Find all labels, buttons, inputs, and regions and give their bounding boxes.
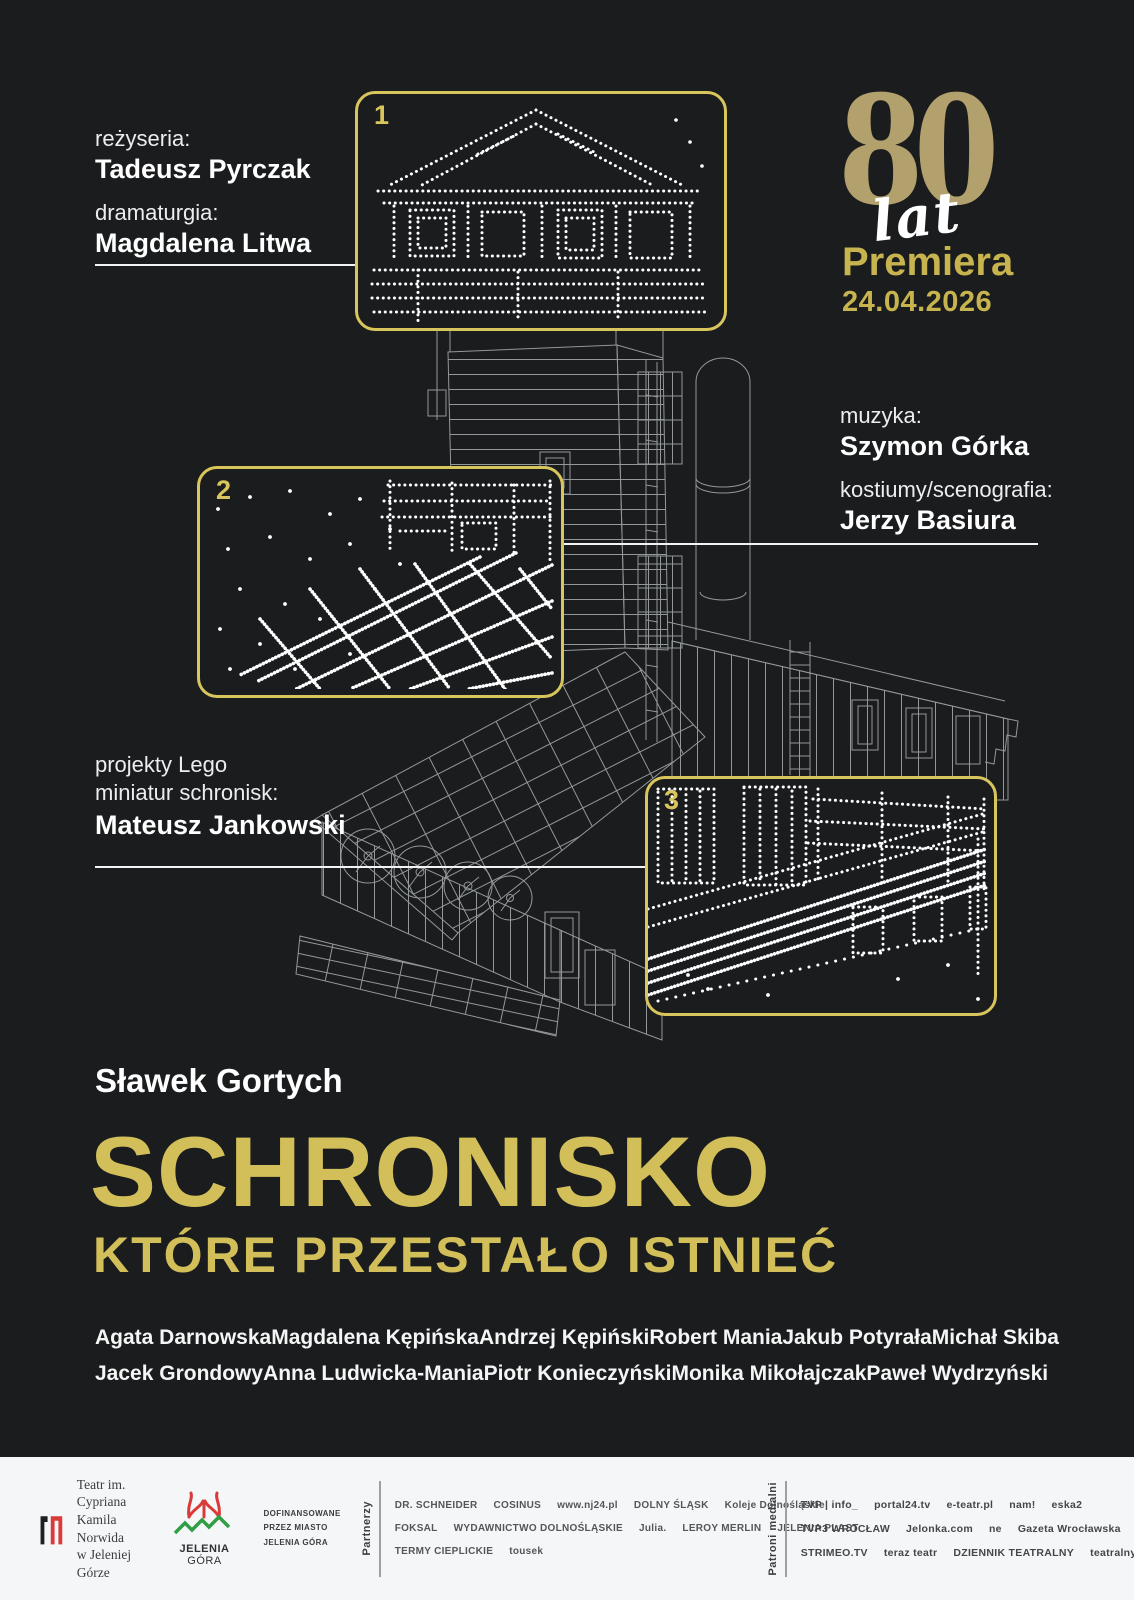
- callout-number-3: 3: [664, 785, 679, 816]
- callout-box-2: 2: [197, 466, 564, 698]
- premiere-date: 24.04.2026: [842, 286, 992, 319]
- partner-logo: LEROY MERLIN: [682, 1523, 761, 1534]
- funding-note: DOFINANSOWANE PRZEZ MIASTO JELENIA GÓRA: [263, 1507, 340, 1550]
- lego-label-line2: miniatur schronisk:: [95, 780, 346, 806]
- theater-poster: 1 2: [0, 0, 1134, 1600]
- media-logo: DZIENNIK TEATRALNY: [953, 1547, 1074, 1559]
- media-logo: TVP3 WROCŁAW: [801, 1523, 890, 1535]
- media-logo: Jelonka.com: [906, 1523, 973, 1535]
- theater-name: Teatr im. Cypriana Kamila Norwida w Jele…: [77, 1476, 142, 1581]
- credits-lego: projekty Lego miniatur schronisk: Mateus…: [95, 752, 346, 856]
- theater-identity: Teatr im. Cypriana Kamila Norwida w Jele…: [38, 1476, 141, 1581]
- jelenia-gora-logo: JELENIA GÓRA: [167, 1491, 241, 1567]
- rezyseria-label: reżyseria:: [95, 126, 311, 152]
- rezyseria-name: Tadeusz Pyrczak: [95, 154, 311, 186]
- cast-row-1: Agata DarnowskaMagdalena KępińskaAndrzej…: [95, 1326, 1017, 1350]
- media-logo: eska2: [1052, 1499, 1083, 1511]
- theater-name-line1: Teatr im. Cypriana: [77, 1476, 142, 1511]
- funding-line3: JELENIA GÓRA: [263, 1536, 340, 1550]
- partner-logo: FOKSAL: [395, 1523, 438, 1534]
- credits-direction: reżyseria: Tadeusz Pyrczak dramaturgia: …: [95, 126, 311, 274]
- callout-number-1: 1: [374, 100, 389, 131]
- theater-name-line3: w Jeleniej Górze: [77, 1546, 142, 1581]
- partners-section-label: Partnerzy: [361, 1474, 381, 1584]
- author-name: Sławek Gortych: [95, 1062, 343, 1100]
- callout-number-2: 2: [216, 475, 231, 506]
- cast-member: Piotr Konieczyński: [484, 1362, 672, 1386]
- cast-member: Anna Ludwicka-Mania: [263, 1362, 484, 1386]
- media-logo: STRIMEO.TV: [801, 1547, 868, 1559]
- anniversary-80-lat-logo: 80 lat: [838, 84, 1038, 234]
- dramaturgia-name: Magdalena Litwa: [95, 228, 311, 260]
- cast-row-2: Jacek GrondowyAnna Ludwicka-ManiaPiotr K…: [95, 1362, 1017, 1386]
- footer-logos-bar: Teatr im. Cypriana Kamila Norwida w Jele…: [0, 1457, 1134, 1600]
- partner-logo: COSINUS: [493, 1500, 541, 1511]
- dramaturgia-label: dramaturgia:: [95, 200, 311, 226]
- cast-member: Paweł Wydrzyński: [866, 1362, 1048, 1386]
- partner-logo: Julia.: [639, 1523, 666, 1534]
- media-logo: e-teatr.pl: [946, 1499, 993, 1511]
- muzyka-label: muzyka:: [840, 403, 1053, 429]
- city-name-bold: JELENIA: [180, 1543, 230, 1555]
- connector-line-3: [95, 866, 647, 868]
- theater-logo-icon: [38, 1501, 65, 1557]
- media-logo: nam!: [1009, 1499, 1035, 1511]
- media-logo: portal24.tv: [874, 1499, 930, 1511]
- lego-name: Mateusz Jankowski: [95, 810, 346, 842]
- cast-member: Robert Mania: [649, 1326, 782, 1350]
- media-logo: teraz teatr: [884, 1547, 938, 1559]
- cast-member: Magdalena Kępińska: [271, 1326, 479, 1350]
- theater-name-line2: Kamila Norwida: [77, 1511, 142, 1546]
- funding-line1: DOFINANSOWANE: [263, 1507, 340, 1521]
- cast-member: Jakub Potyrała: [782, 1326, 931, 1350]
- partner-logo: DOLNY ŚLĄSK: [634, 1500, 709, 1511]
- media-logo: TVP | info_: [801, 1499, 858, 1511]
- stipple-tower-top-drawing: [358, 94, 718, 322]
- partners-divider: [379, 1481, 381, 1577]
- cast-member: Andrzej Kępiński: [479, 1326, 649, 1350]
- kostiumy-label: kostiumy/scenografia:: [840, 477, 1053, 503]
- lego-label-line1: projekty Lego: [95, 752, 346, 778]
- callout-box-1: 1: [355, 91, 727, 331]
- partner-logo: WYDAWNICTWO DOLNOŚLĄSKIE: [454, 1523, 623, 1534]
- muzyka-name: Szymon Górka: [840, 431, 1053, 463]
- media-logo: ne: [989, 1523, 1002, 1535]
- antlers-mountains-icon: [167, 1491, 241, 1537]
- media-divider: [785, 1481, 787, 1577]
- partner-logo: www.nj24.pl: [557, 1500, 618, 1511]
- cast-member: Agata Darnowska: [95, 1326, 271, 1350]
- callout-box-3: 3: [645, 776, 997, 1016]
- stipple-roof-drawing: [200, 469, 555, 689]
- kostiumy-name: Jerzy Basiura: [840, 505, 1053, 537]
- media-patron-logos: TVP | info_portal24.tve-teatr.plnam!eska…: [801, 1499, 1134, 1559]
- media-logo: teatralny: [1090, 1547, 1134, 1559]
- media-section-label: Patroni medialni: [767, 1474, 787, 1584]
- premiere-label: Premiera: [842, 240, 1013, 285]
- partners-label: Partnerzy: [361, 1501, 373, 1556]
- funding-line2: PRZEZ MIASTO: [263, 1521, 340, 1535]
- partner-logo: DR. SCHNEIDER: [395, 1500, 478, 1511]
- play-title-line1: SCHRONISKO: [90, 1122, 771, 1221]
- stipple-wall-drawing: [648, 779, 988, 1007]
- cast-member: Michał Skiba: [932, 1326, 1059, 1350]
- media-patrons-label: Patroni medialni: [767, 1482, 779, 1576]
- jelenia-gora-wordmark: JELENIA GÓRA: [167, 1543, 241, 1567]
- credits-music-costume: muzyka: Szymon Górka kostiumy/scenografi…: [840, 403, 1053, 551]
- media-logo: Gazeta Wrocławska: [1018, 1523, 1121, 1535]
- cast-member: Jacek Grondowy: [95, 1362, 263, 1386]
- partners-logos: DR. SCHNEIDERCOSINUSwww.nj24.plDOLNY ŚLĄ…: [395, 1500, 747, 1557]
- city-name-light: GÓRA: [187, 1555, 221, 1567]
- partner-logo: TERMY CIEPLICKIE: [395, 1546, 494, 1557]
- partner-logo: tousek: [509, 1546, 543, 1557]
- play-title-line2: KTÓRE PRZESTAŁO ISTNIEĆ: [93, 1230, 838, 1280]
- cast-member: Monika Mikołajczak: [671, 1362, 866, 1386]
